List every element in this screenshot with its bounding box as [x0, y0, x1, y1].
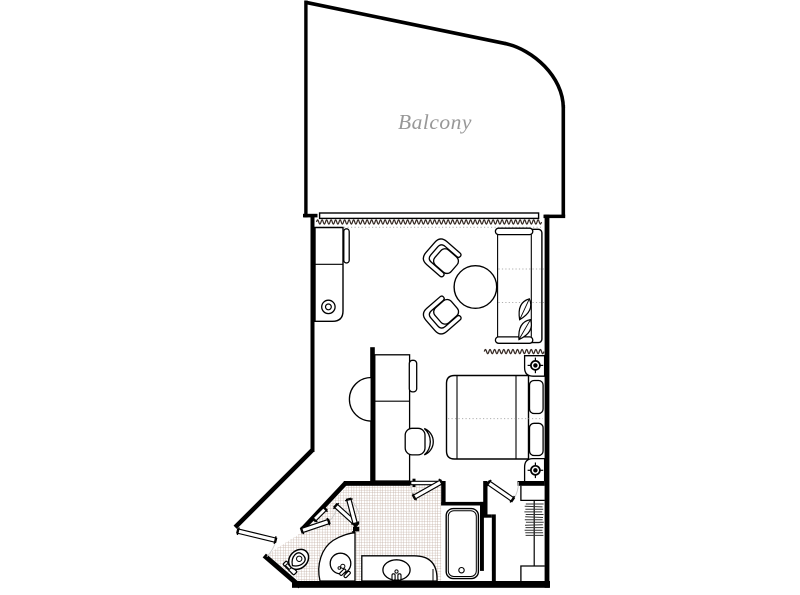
svg-text:Balcony: Balcony: [398, 110, 472, 134]
